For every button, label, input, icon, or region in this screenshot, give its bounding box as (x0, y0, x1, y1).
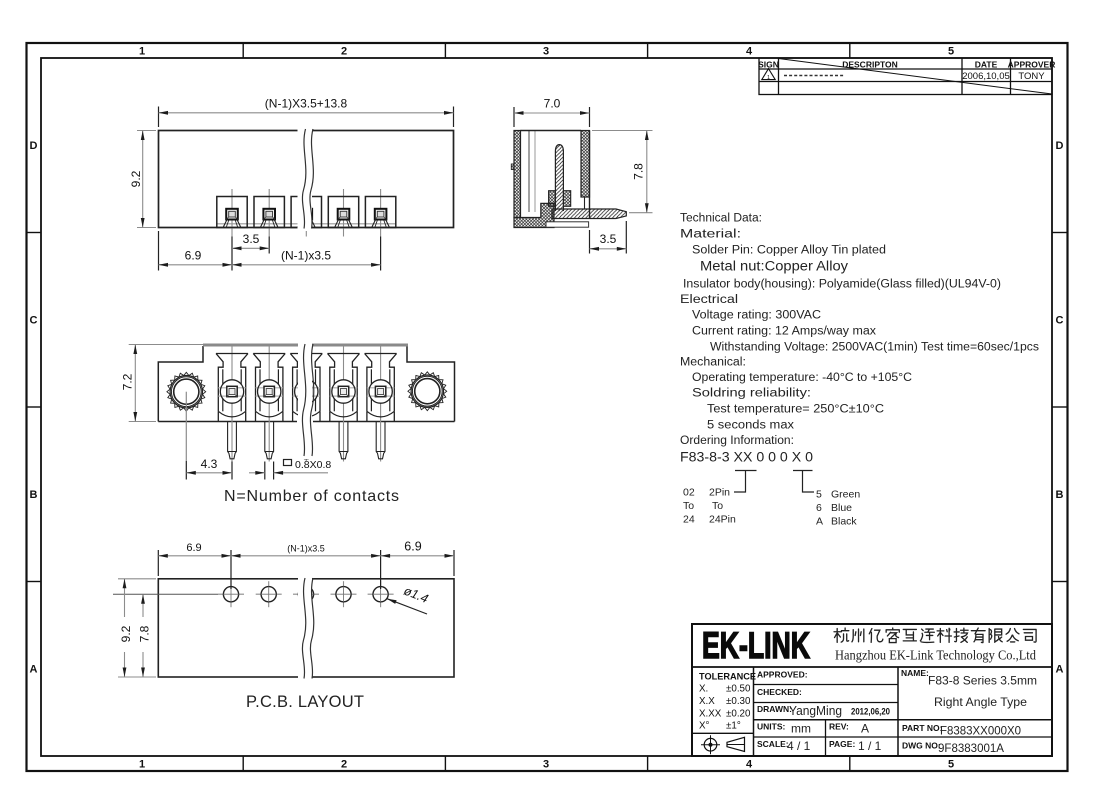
svg-text:A: A (1056, 664, 1064, 676)
svg-text:A: A (30, 664, 38, 676)
svg-text:2012,06,20: 2012,06,20 (851, 707, 890, 717)
svg-text:A: A (861, 722, 869, 736)
svg-text:C: C (1056, 315, 1064, 327)
svg-text:02: 02 (683, 487, 695, 499)
svg-text:6.9: 6.9 (404, 540, 421, 554)
svg-text:APPROVED:: APPROVED: (757, 670, 808, 680)
svg-text:Voltage rating: 300VAC: Voltage rating: 300VAC (692, 310, 821, 322)
svg-text:APPROVER: APPROVER (1008, 60, 1056, 70)
svg-text:Right Angle Type: Right Angle Type (934, 695, 1027, 709)
svg-text:5: 5 (948, 759, 954, 771)
svg-text:Electrical: Electrical (680, 294, 738, 306)
svg-text:TOLERANCE: TOLERANCE (699, 672, 756, 682)
svg-text:X.XX: X.XX (699, 709, 722, 720)
svg-text:Insulator body(housing): Polya: Insulator body(housing): Polyamide(Glass… (683, 279, 1001, 291)
svg-text:4.3: 4.3 (201, 457, 218, 471)
svg-text:REV:: REV: (829, 722, 849, 732)
svg-text:6.9: 6.9 (186, 542, 201, 554)
svg-text:Mechanical:: Mechanical: (680, 357, 746, 369)
svg-text:DESCRIPTON: DESCRIPTON (842, 60, 898, 70)
svg-text:1: 1 (139, 46, 145, 58)
svg-text:3: 3 (543, 46, 549, 58)
svg-text:X.X: X.X (699, 696, 715, 707)
svg-text:±0.20: ±0.20 (726, 709, 751, 720)
svg-text:7.8: 7.8 (138, 625, 152, 642)
svg-text:PAGE:: PAGE: (829, 739, 855, 749)
svg-text:24Pin: 24Pin (709, 514, 736, 526)
svg-text:1 / 1: 1 / 1 (858, 739, 882, 753)
svg-text:2: 2 (341, 46, 347, 58)
svg-text:PART NO:: PART NO: (902, 723, 943, 733)
svg-text:9F8383001A: 9F8383001A (938, 741, 1004, 755)
svg-text:F83-8 Series 3.5mm: F83-8 Series 3.5mm (928, 674, 1037, 688)
svg-text:NAME:: NAME: (901, 668, 929, 678)
svg-text:B: B (30, 489, 38, 501)
svg-text:F83-8-3 XX 0 0 0 X 0: F83-8-3 XX 0 0 0 X 0 (680, 450, 813, 465)
svg-text:6.9: 6.9 (185, 249, 202, 263)
svg-text:7.0: 7.0 (544, 97, 561, 111)
svg-text:3.5: 3.5 (600, 232, 617, 246)
svg-text:(N-1)x3.5: (N-1)x3.5 (287, 544, 325, 554)
svg-text:Current rating: 12 Amps/way ma: Current rating: 12 Amps/way max (692, 326, 876, 338)
svg-text:Operating temperature: -40°C t: Operating temperature: -40°C to +105°C (692, 372, 912, 384)
svg-text:B: B (1056, 489, 1064, 501)
svg-text:Soldring reliability:: Soldring reliability: (692, 388, 811, 400)
svg-text:4: 4 (746, 759, 753, 771)
svg-text:DATE: DATE (975, 60, 998, 70)
svg-text:X.: X. (699, 684, 708, 695)
svg-text:2006,10,05: 2006,10,05 (962, 71, 1010, 82)
svg-text:A: A (816, 516, 823, 528)
svg-text:To: To (712, 500, 723, 512)
svg-text:9.2: 9.2 (129, 170, 143, 187)
svg-text:7.2: 7.2 (120, 373, 134, 390)
svg-text:SCALE:: SCALE: (757, 739, 789, 749)
svg-text:(N-1)X3.5+13.8: (N-1)X3.5+13.8 (265, 97, 348, 111)
svg-text:1: 1 (139, 759, 145, 771)
svg-text:24: 24 (683, 514, 695, 526)
svg-text:4 / 1: 4 / 1 (787, 739, 811, 753)
svg-text:Solder Pin: Copper Alloy Tin p: Solder Pin: Copper Alloy Tin plated (692, 245, 886, 257)
svg-text:Green: Green (831, 489, 860, 501)
svg-text:EK-LINK: EK-LINK (702, 625, 810, 666)
svg-text:Test temperature= 250°C±10°C: Test temperature= 250°C±10°C (707, 404, 884, 416)
svg-text:7.8: 7.8 (632, 163, 646, 180)
svg-text:Hangzhou EK-Link Technology Co: Hangzhou EK-Link Technology Co.,Ltd (835, 648, 1036, 663)
svg-text:Black: Black (831, 516, 857, 528)
svg-text:F8383XX000X0: F8383XX000X0 (940, 724, 1021, 738)
svg-text:6: 6 (816, 502, 822, 514)
svg-text:Material:: Material: (680, 229, 741, 241)
svg-text:N=Number of contacts: N=Number of contacts (224, 488, 399, 505)
svg-text:DWG NO:: DWG NO: (902, 741, 941, 751)
svg-text:3.5: 3.5 (243, 232, 260, 246)
svg-text:(N-1)x3.5: (N-1)x3.5 (281, 249, 331, 263)
svg-text:2Pin: 2Pin (709, 487, 730, 499)
svg-text:3: 3 (543, 759, 549, 771)
svg-text:To: To (683, 500, 694, 512)
svg-text:Withstanding Voltage: 2500VAC(: Withstanding Voltage: 2500VAC(1min) Test… (710, 342, 1039, 354)
svg-text:Ordering Information:: Ordering Information: (680, 435, 794, 447)
svg-text:mm: mm (791, 722, 811, 736)
svg-text:C: C (30, 315, 38, 327)
svg-text:Blue: Blue (831, 502, 852, 514)
svg-text:5: 5 (816, 489, 822, 501)
svg-text:Technical Data:: Technical Data: (680, 213, 762, 225)
svg-text:5 seconds max: 5 seconds max (707, 420, 794, 432)
svg-text:4: 4 (746, 46, 753, 58)
svg-text:D: D (1056, 140, 1064, 152)
svg-text:X°: X° (699, 721, 710, 732)
svg-text:YangMing: YangMing (789, 704, 842, 718)
svg-text:9.2: 9.2 (119, 625, 133, 642)
svg-text:D: D (30, 140, 38, 152)
svg-text:5: 5 (948, 46, 954, 58)
svg-text:1: 1 (767, 75, 770, 81)
svg-text:UNITS:: UNITS: (757, 722, 786, 732)
svg-text:±1°: ±1° (726, 721, 741, 732)
svg-text:2: 2 (341, 759, 347, 771)
svg-text:CHECKED:: CHECKED: (757, 687, 802, 697)
svg-text:0.8X0.8: 0.8X0.8 (295, 459, 331, 471)
svg-text:TONY: TONY (1018, 71, 1045, 82)
svg-text:±0.30: ±0.30 (726, 696, 751, 707)
svg-text:±0.50: ±0.50 (726, 684, 751, 695)
svg-text:P.C.B. LAYOUT: P.C.B. LAYOUT (246, 693, 364, 711)
svg-text:Metal nut:Copper Alloy: Metal nut:Copper Alloy (700, 259, 848, 274)
svg-text:DRAWN:: DRAWN: (757, 704, 792, 714)
